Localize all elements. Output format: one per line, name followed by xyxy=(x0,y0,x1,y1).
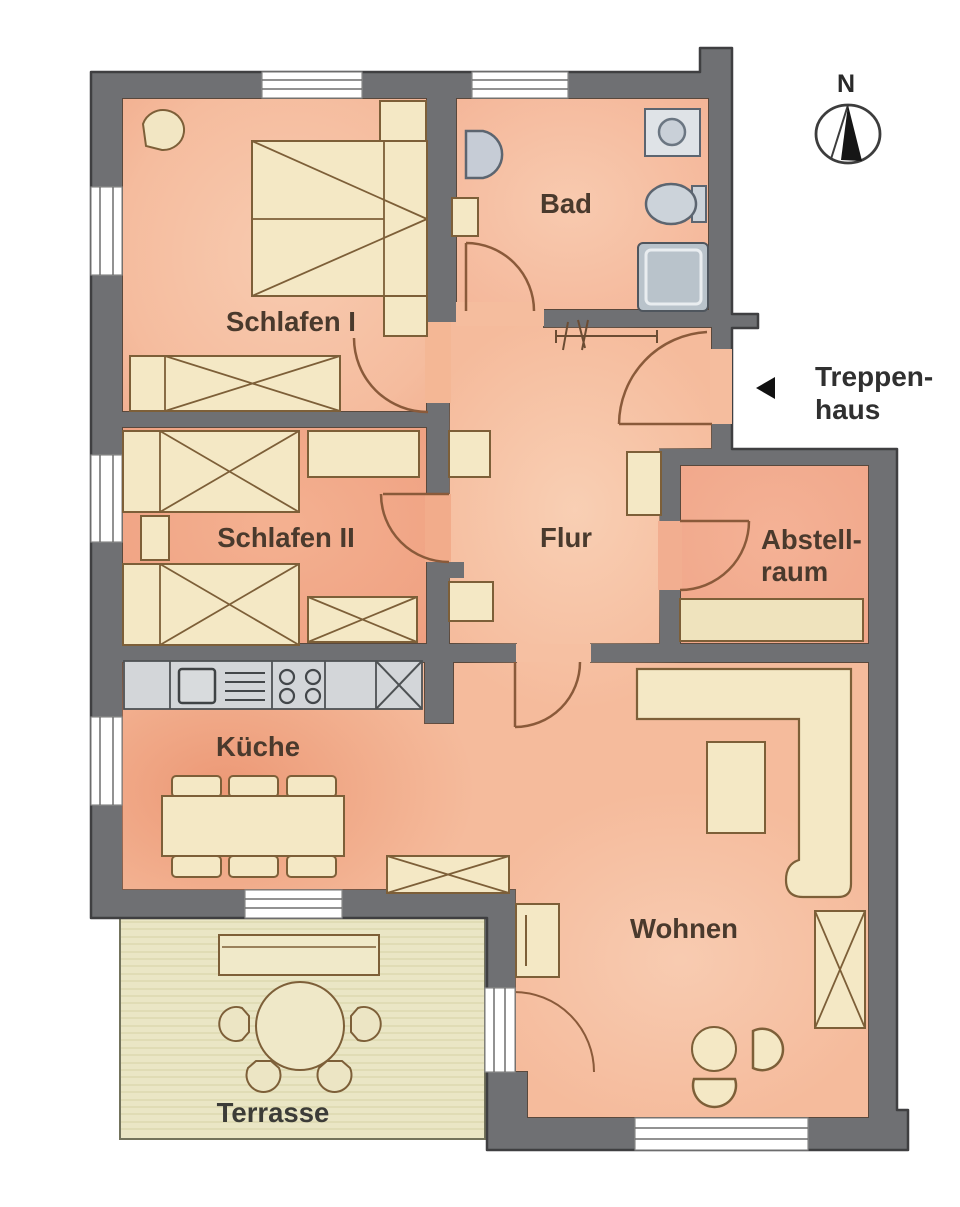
svg-text:N: N xyxy=(837,70,855,98)
svg-text:Schlafen I: Schlafen I xyxy=(226,306,356,337)
svg-text:Terrasse: Terrasse xyxy=(217,1097,330,1128)
svg-text:Abstell-: Abstell- xyxy=(761,524,862,555)
svg-text:Bad: Bad xyxy=(540,188,592,219)
svg-text:Schlafen II: Schlafen II xyxy=(217,522,355,553)
svg-text:raum: raum xyxy=(761,556,828,587)
svg-text:Flur: Flur xyxy=(540,522,592,553)
svg-text:Treppen-: Treppen- xyxy=(815,361,933,392)
svg-text:Küche: Küche xyxy=(216,731,300,762)
svg-text:haus: haus xyxy=(815,394,880,425)
svg-text:Wohnen: Wohnen xyxy=(630,913,738,944)
